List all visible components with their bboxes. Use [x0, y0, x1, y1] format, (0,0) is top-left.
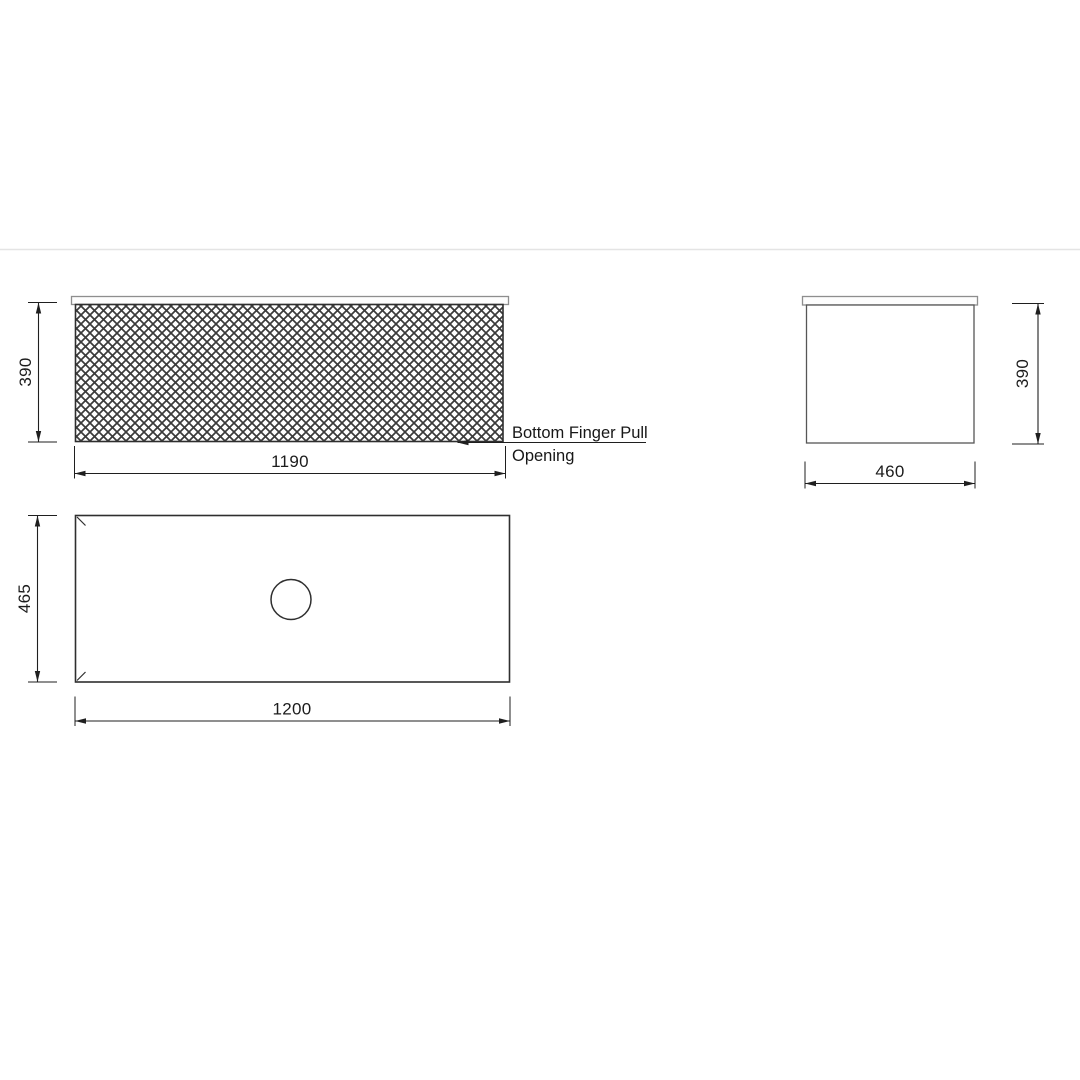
front-height-dim-label: 390 [16, 357, 35, 386]
front-countertop [72, 297, 509, 305]
plan-depth-dim-label: 465 [15, 584, 34, 613]
front-elevation-view: 390 1190 Bottom Finger Pull Opening [16, 297, 648, 479]
side-elevation-view: 390 460 [803, 297, 1045, 489]
front-width-dim-label: 1190 [271, 452, 309, 471]
finger-pull-callout-line2: Opening [512, 447, 574, 465]
plan-view: 465 1200 [15, 516, 510, 727]
side-depth-dim-label: 460 [875, 462, 904, 481]
side-height-dim-label: 390 [1013, 359, 1032, 388]
drawing-page: 390 1190 Bottom Finger Pull Opening 390 [0, 0, 1080, 1080]
side-countertop [803, 297, 978, 306]
front-door-panel-hatched [76, 305, 504, 442]
side-cabinet-body [807, 305, 975, 443]
finger-pull-callout-line1: Bottom Finger Pull [512, 424, 648, 442]
technical-drawing: 390 1190 Bottom Finger Pull Opening 390 [0, 0, 1080, 1080]
plan-width-dim-label: 1200 [272, 700, 311, 719]
plan-tap-hole [271, 580, 311, 620]
